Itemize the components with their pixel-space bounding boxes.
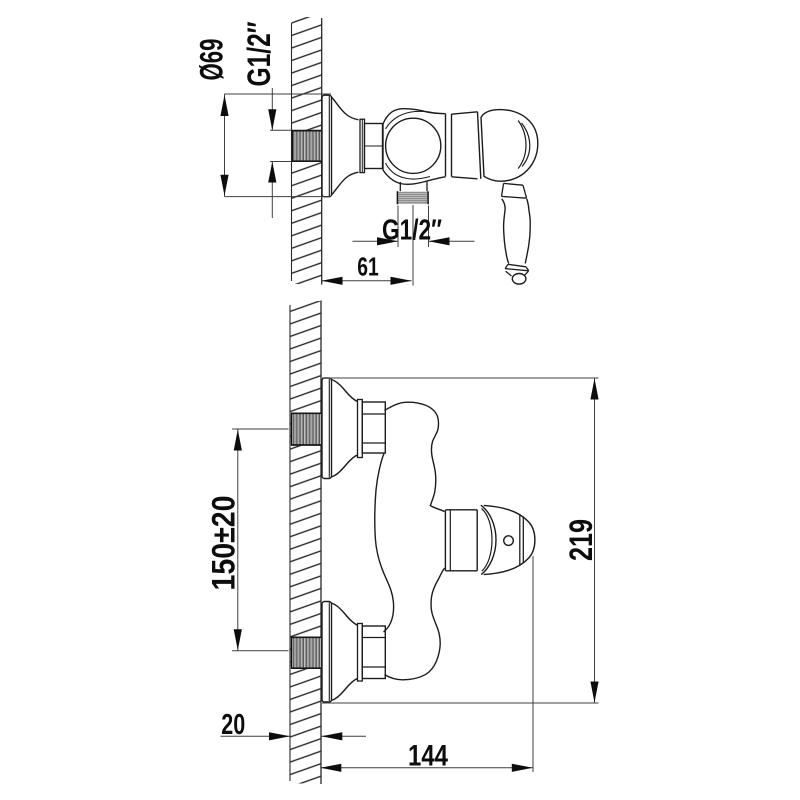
svg-text:150±20: 150±20 — [206, 496, 242, 591]
svg-text:61: 61 — [357, 252, 379, 282]
svg-text:Ø69: Ø69 — [194, 39, 230, 81]
svg-text:144: 144 — [408, 740, 448, 773]
svg-text:20: 20 — [221, 709, 245, 741]
svg-text:G1/2″: G1/2″ — [382, 215, 442, 247]
svg-text:G1/2″: G1/2″ — [241, 22, 277, 87]
svg-text:219: 219 — [563, 519, 599, 561]
